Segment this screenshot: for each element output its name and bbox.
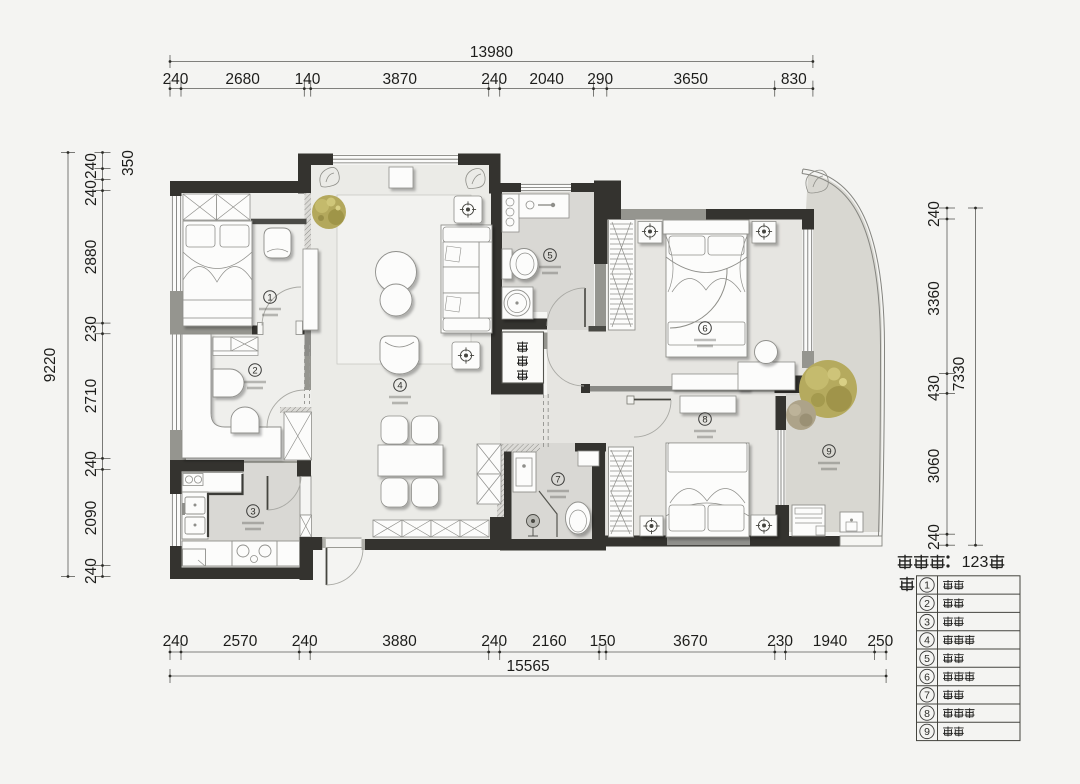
- svg-text:2570: 2570: [223, 633, 258, 650]
- svg-text:3650: 3650: [674, 71, 709, 88]
- svg-text:240: 240: [926, 201, 943, 227]
- svg-text:2: 2: [924, 598, 930, 610]
- svg-text:290: 290: [587, 71, 613, 88]
- svg-text:240: 240: [481, 71, 507, 88]
- svg-text:9220: 9220: [42, 347, 59, 382]
- svg-text:7: 7: [555, 474, 560, 485]
- svg-text:2680: 2680: [225, 71, 260, 88]
- svg-text:240: 240: [926, 524, 943, 550]
- svg-text:3060: 3060: [926, 448, 943, 483]
- svg-text:1: 1: [267, 292, 272, 303]
- svg-text:240: 240: [83, 451, 100, 477]
- svg-text:7: 7: [924, 690, 930, 702]
- svg-text:9: 9: [924, 726, 930, 738]
- svg-text:2160: 2160: [532, 633, 567, 650]
- svg-text:150: 150: [590, 633, 616, 650]
- svg-text:2: 2: [252, 365, 257, 376]
- svg-text:8: 8: [924, 708, 930, 720]
- svg-text:5: 5: [924, 653, 930, 665]
- svg-text:15565: 15565: [506, 658, 549, 675]
- svg-text:2710: 2710: [83, 378, 100, 413]
- svg-text:240: 240: [163, 633, 189, 650]
- svg-text:240: 240: [83, 180, 100, 206]
- svg-text:5: 5: [547, 250, 552, 261]
- svg-text:2040: 2040: [529, 71, 564, 88]
- svg-text:240: 240: [163, 71, 189, 88]
- svg-text:140: 140: [295, 71, 321, 88]
- svg-text:7330: 7330: [951, 356, 968, 391]
- svg-text:430: 430: [926, 375, 943, 401]
- svg-text:8: 8: [702, 414, 707, 425]
- svg-text:3: 3: [924, 616, 930, 628]
- svg-text:3880: 3880: [382, 633, 417, 650]
- svg-text:3670: 3670: [673, 633, 708, 650]
- svg-text:9: 9: [826, 446, 831, 457]
- svg-text:2880: 2880: [83, 239, 100, 274]
- svg-text:240: 240: [83, 153, 100, 179]
- svg-text:13980: 13980: [470, 44, 513, 61]
- svg-text:3360: 3360: [926, 281, 943, 316]
- svg-text:230: 230: [767, 633, 793, 650]
- svg-text:123: 123: [962, 554, 989, 571]
- svg-text:350: 350: [120, 150, 137, 176]
- svg-text:2090: 2090: [83, 500, 100, 535]
- svg-text:240: 240: [83, 558, 100, 584]
- svg-text:830: 830: [781, 71, 807, 88]
- svg-text:250: 250: [867, 633, 893, 650]
- svg-text:4: 4: [397, 380, 402, 391]
- svg-text:6: 6: [702, 323, 707, 334]
- svg-text:1940: 1940: [813, 633, 848, 650]
- svg-text:6: 6: [924, 671, 930, 683]
- svg-text:3: 3: [250, 506, 255, 517]
- svg-text:230: 230: [83, 316, 100, 342]
- svg-text:4: 4: [924, 635, 930, 647]
- svg-text:240: 240: [481, 633, 507, 650]
- svg-text:240: 240: [292, 633, 318, 650]
- svg-text:1: 1: [924, 580, 930, 592]
- svg-text:3870: 3870: [382, 71, 417, 88]
